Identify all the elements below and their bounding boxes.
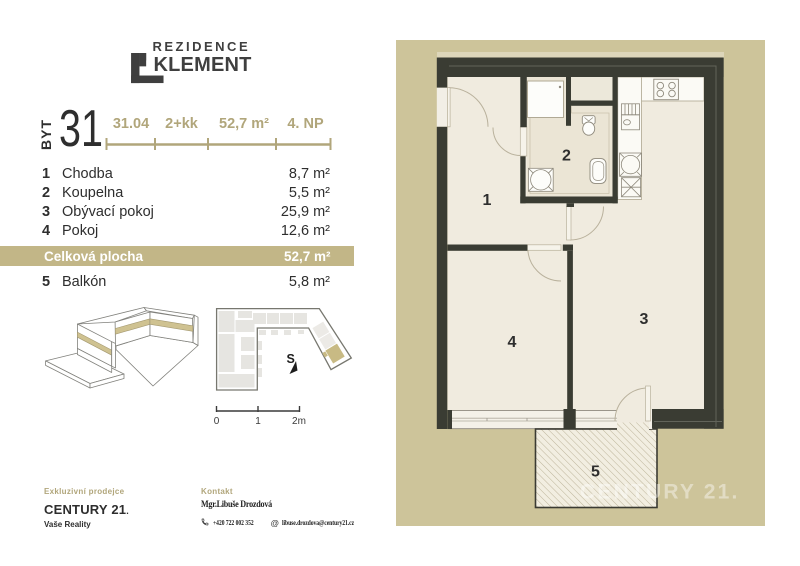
svg-text:4: 4: [508, 334, 517, 351]
svg-text:5: 5: [591, 464, 600, 481]
svg-text:1: 1: [255, 416, 261, 426]
svg-text:1: 1: [483, 192, 492, 209]
svg-text:CENTURY 21.: CENTURY 21.: [580, 481, 740, 504]
svg-text:0: 0: [214, 416, 220, 426]
svg-text:S: S: [287, 352, 295, 366]
svg-text:3: 3: [640, 311, 649, 328]
svg-text:2: 2: [562, 148, 571, 165]
svg-text:2m: 2m: [292, 416, 306, 426]
